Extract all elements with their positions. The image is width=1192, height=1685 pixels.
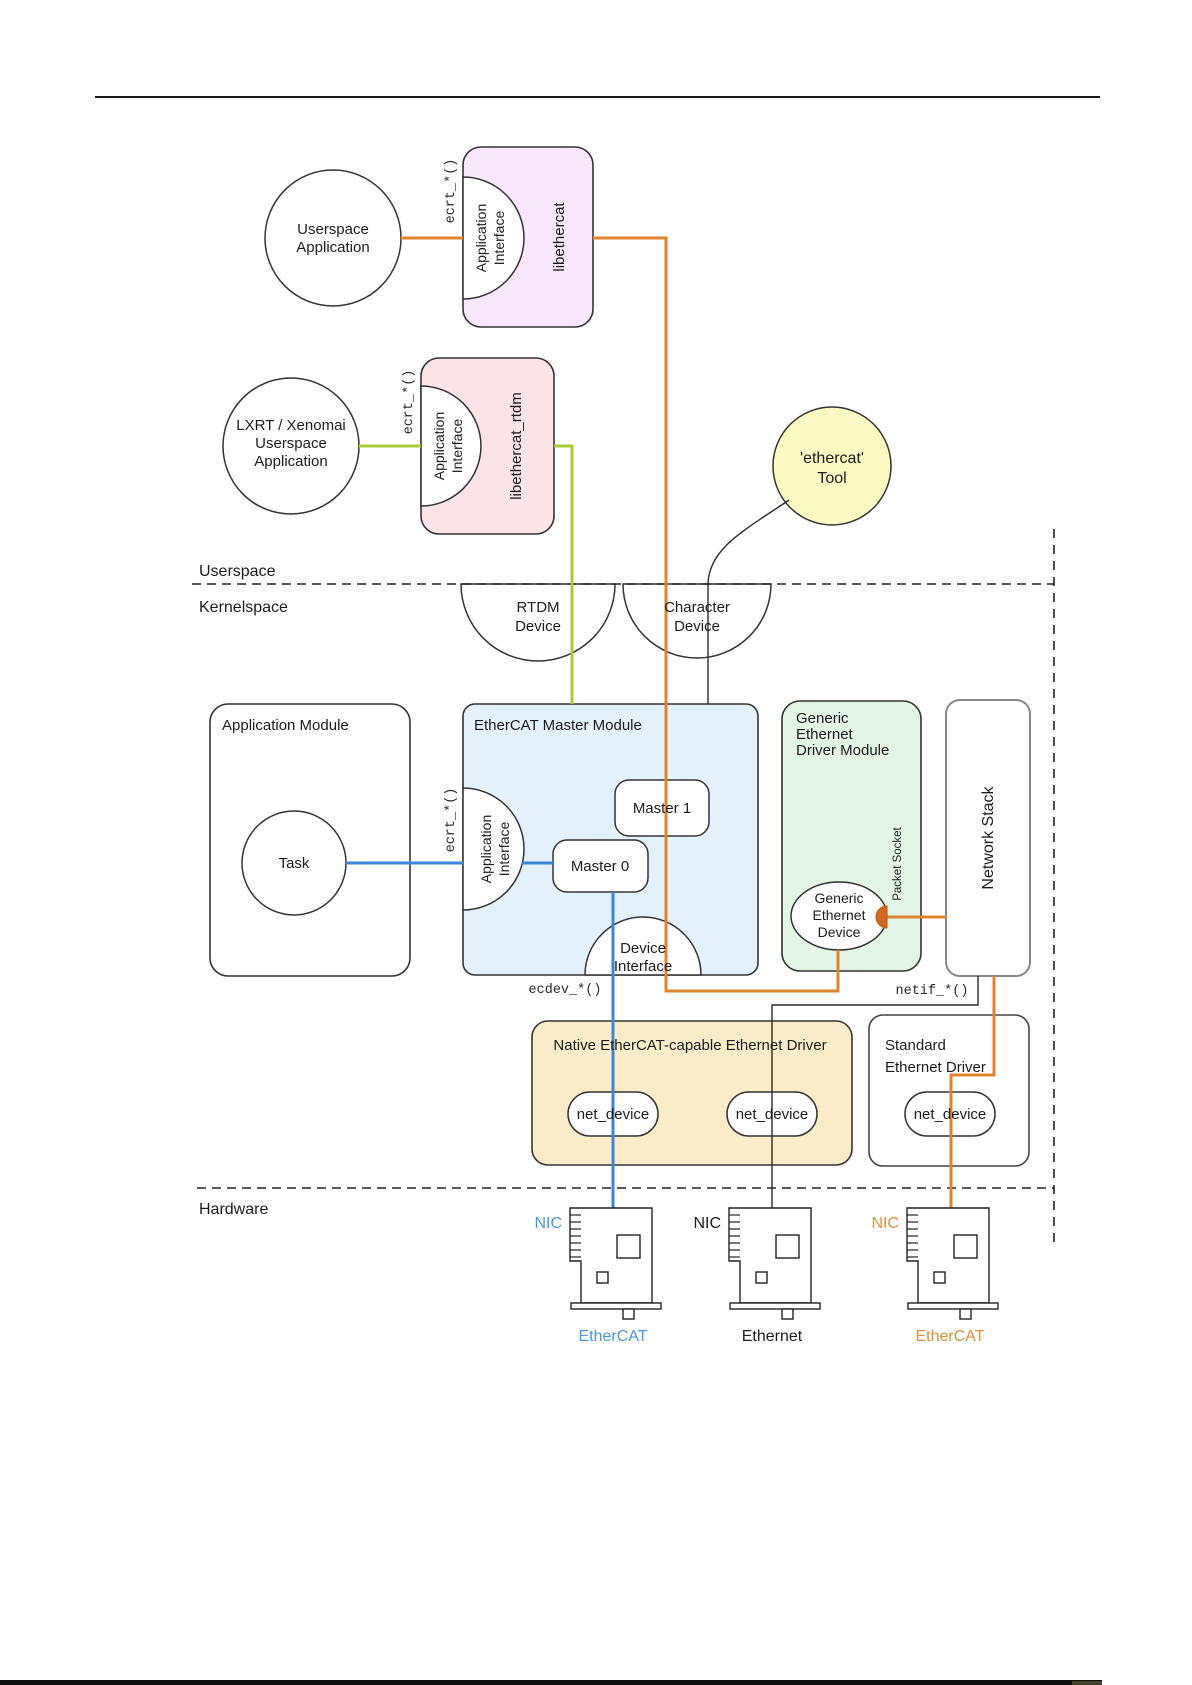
rtdm-interface-line1: Application (431, 412, 447, 481)
nic-chip-small (934, 1272, 945, 1283)
nic-chip-large (954, 1235, 977, 1258)
userspace-app-label-line1: Userspace (297, 221, 369, 238)
nic-port (623, 1309, 634, 1319)
master1-label: Master 1 (633, 800, 691, 817)
ethercat-master-module-title: EtherCAT Master Module (474, 717, 642, 734)
connector-rtdm-lib-to-master-module (554, 446, 572, 704)
nic-label-2: NIC (693, 1215, 721, 1232)
nic-label-1: NIC (534, 1215, 562, 1232)
standard-driver-title-line1: Standard (885, 1037, 946, 1054)
master-interface-line2: Interface (496, 822, 512, 877)
ecrt-label-master: ecrt_*() (444, 788, 459, 853)
net-device-2-label: net_device (736, 1106, 809, 1123)
userspace-section-label: Userspace (199, 563, 276, 580)
generic-module-title-line2: Ethernet (796, 726, 854, 743)
libethercat-rtdm-label: libethercat_rtdm (508, 392, 525, 500)
libethercat-label: libethercat (551, 202, 568, 272)
ecrt-label-libethercat: ecrt_*() (444, 159, 459, 224)
hardware-section-label: Hardware (199, 1201, 268, 1218)
ecrt-label-rtdm: ecrt_*() (402, 370, 417, 435)
character-device-label-line1: Character (664, 599, 730, 616)
packet-socket-label: Packet Socket (892, 826, 904, 900)
netif-label: netif_*() (896, 984, 969, 999)
master-interface-line1: Application (478, 815, 494, 884)
net-device-1-label: net_device (577, 1106, 650, 1123)
task-label: Task (279, 855, 310, 872)
userspace-app-label-line2: Application (296, 239, 369, 256)
libethercat-interface-line2: Interface (491, 211, 507, 266)
device-interface-label-line2: Interface (614, 958, 672, 975)
ethercat-tool-label-line1: 'ethercat' (800, 450, 864, 467)
lxrt-app-label-line2: Userspace (255, 435, 327, 452)
nic-bracket (571, 1303, 661, 1309)
nic-card-ethercat-1 (570, 1208, 661, 1319)
bus-label-ethercat-2: EtherCAT (915, 1328, 984, 1345)
kernelspace-section-label: Kernelspace (199, 599, 288, 616)
native-driver-title: Native EtherCAT-capable Ethernet Driver (553, 1037, 826, 1054)
net-device-3-label: net_device (914, 1106, 987, 1123)
nic-card-ethernet (729, 1208, 820, 1319)
network-stack-label: Network Stack (980, 785, 997, 889)
generic-module-title-line3: Driver Module (796, 742, 889, 759)
nic-chip-small (756, 1272, 767, 1283)
bus-label-ethernet: Ethernet (742, 1328, 803, 1345)
application-module-title: Application Module (222, 717, 349, 734)
ecdev-label: ecdev_*() (529, 983, 602, 998)
device-interface-label-line1: Device (620, 940, 666, 957)
nic-bracket (908, 1303, 998, 1309)
nic-chip-large (617, 1235, 640, 1258)
nic-bracket (730, 1303, 820, 1309)
nic-port (782, 1309, 793, 1319)
rtdm-device-label-line1: RTDM (516, 599, 559, 616)
lxrt-app-label-line3: Application (254, 453, 327, 470)
page-bottom-edge (0, 1680, 1102, 1685)
generic-module-title-line1: Generic (796, 710, 849, 727)
bus-label-ethercat-1: EtherCAT (578, 1328, 647, 1345)
nic-chip-small (597, 1272, 608, 1283)
ethercat-tool-label-line2: Tool (817, 470, 846, 487)
nic-chip-large (776, 1235, 799, 1258)
generic-device-label-line1: Generic (814, 890, 863, 906)
nic-card-ethercat-2 (907, 1208, 998, 1319)
nic-port (960, 1309, 971, 1319)
page-bottom-edge-artifact (1072, 1681, 1102, 1685)
master0-label: Master 0 (571, 858, 629, 875)
libethercat-interface-line1: Application (473, 204, 489, 273)
userspace-application-circle (265, 170, 401, 306)
lxrt-app-label-line1: LXRT / Xenomai (236, 417, 346, 434)
document-page: Userspace Kernelspace Hardware Userspace… (0, 0, 1192, 1685)
character-device-label-line2: Device (674, 618, 720, 635)
rtdm-device-label-line2: Device (515, 618, 561, 635)
generic-device-label-line2: Ethernet (813, 907, 866, 923)
rtdm-interface-line2: Interface (449, 419, 465, 474)
standard-driver-title-line2: Ethernet Driver (885, 1059, 986, 1076)
generic-device-label-line3: Device (818, 924, 861, 940)
nic-label-3: NIC (871, 1215, 899, 1232)
architecture-diagram: Userspace Kernelspace Hardware Userspace… (0, 0, 1192, 1685)
